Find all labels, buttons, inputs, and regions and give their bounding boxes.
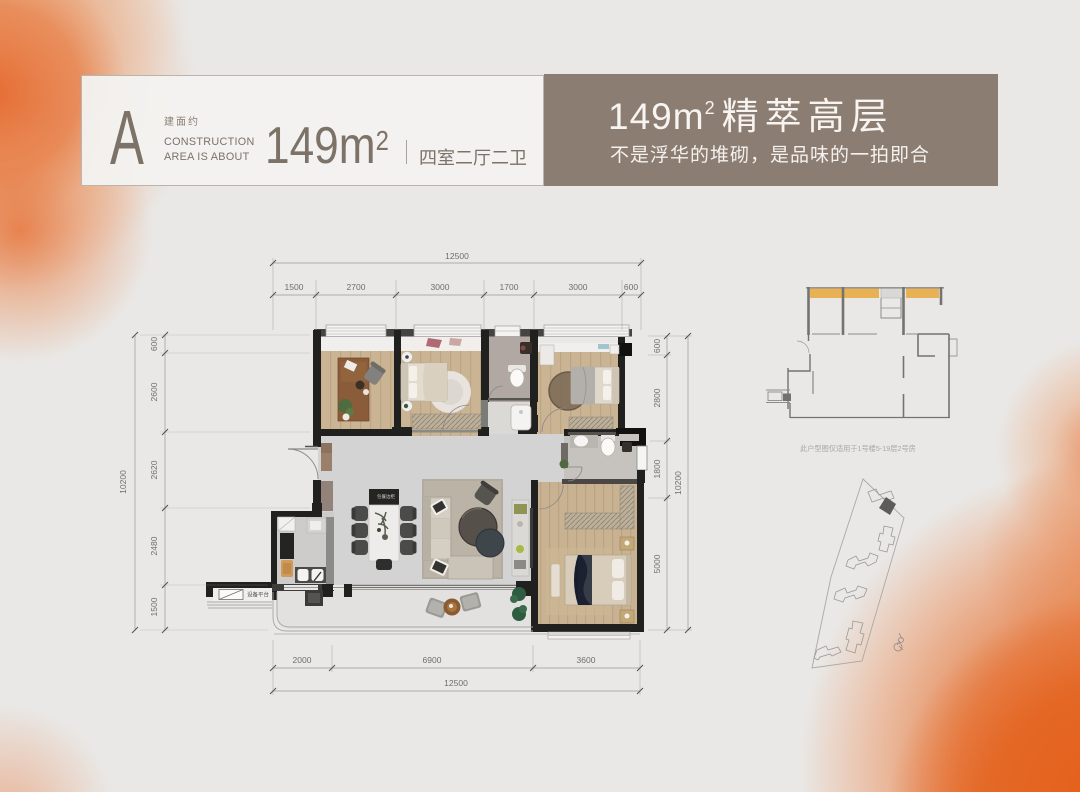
svg-text:设备平台: 设备平台	[247, 591, 270, 599]
svg-text:包餐边柜: 包餐边柜	[377, 493, 395, 500]
svg-text:12500: 12500	[445, 251, 469, 261]
svg-text:1500: 1500	[149, 597, 159, 616]
svg-text:2800: 2800	[652, 388, 662, 407]
svg-text:12500: 12500	[444, 678, 468, 688]
svg-text:2480: 2480	[149, 536, 159, 555]
svg-text:3000: 3000	[569, 282, 588, 292]
svg-text:10200: 10200	[118, 470, 128, 494]
svg-text:3600: 3600	[577, 655, 596, 665]
svg-text:600: 600	[624, 282, 638, 292]
svg-text:1700: 1700	[500, 282, 519, 292]
svg-text:2620: 2620	[149, 460, 159, 479]
svg-text:10200: 10200	[673, 471, 683, 495]
svg-text:此户型图仅适用于1号楼5-19层2号房: 此户型图仅适用于1号楼5-19层2号房	[800, 444, 916, 453]
svg-text:2000: 2000	[293, 655, 312, 665]
svg-text:5000: 5000	[652, 554, 662, 573]
svg-text:2600: 2600	[149, 382, 159, 401]
svg-text:3000: 3000	[431, 282, 450, 292]
svg-text:6900: 6900	[423, 655, 442, 665]
svg-text:2700: 2700	[347, 282, 366, 292]
svg-text:600: 600	[149, 337, 159, 351]
svg-text:1500: 1500	[285, 282, 304, 292]
svg-text:600: 600	[652, 339, 662, 353]
svg-text:1800: 1800	[652, 459, 662, 478]
